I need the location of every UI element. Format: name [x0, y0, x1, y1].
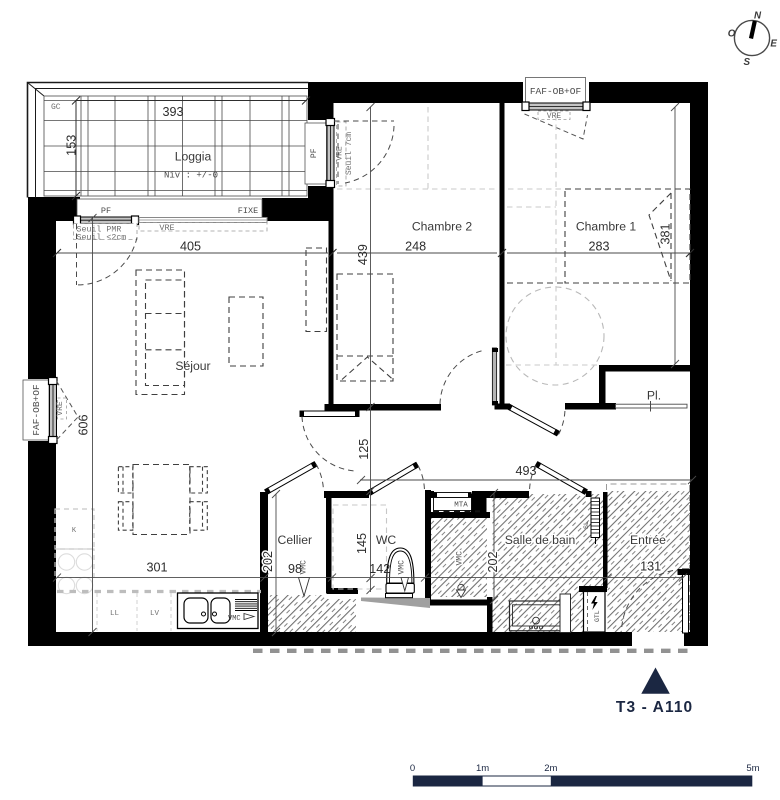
svg-text:FAF-OB+OF: FAF-OB+OF — [530, 86, 582, 97]
svg-text:Niv : +/-0: Niv : +/-0 — [164, 171, 218, 181]
svg-text:VMC: VMC — [456, 551, 465, 566]
svg-text:Pl.: Pl. — [647, 389, 661, 403]
svg-text:0: 0 — [410, 763, 415, 774]
svg-text:GTL: GTL — [594, 610, 601, 622]
svg-text:393: 393 — [162, 105, 183, 119]
svg-text:405: 405 — [180, 240, 201, 254]
svg-text:S: S — [744, 57, 751, 68]
svg-text:145: 145 — [355, 533, 369, 554]
svg-text:E: E — [770, 39, 777, 50]
svg-text:493: 493 — [515, 464, 536, 478]
svg-text:301: 301 — [146, 561, 167, 575]
svg-text:VMC: VMC — [398, 560, 407, 575]
svg-text:VRE: VRE — [159, 223, 174, 233]
svg-text:131: 131 — [640, 560, 661, 574]
svg-text:142: 142 — [369, 562, 390, 576]
svg-text:SL: SL — [583, 521, 590, 529]
svg-text:WC: WC — [376, 533, 397, 547]
svg-text:GC: GC — [51, 103, 61, 112]
svg-text:1m: 1m — [476, 763, 489, 774]
svg-text:381: 381 — [658, 223, 672, 244]
svg-text:Chambre 2: Chambre 2 — [412, 220, 473, 234]
svg-text:T3 - A110: T3 - A110 — [616, 699, 693, 716]
svg-text:FAF-OB+OF: FAF-OB+OF — [31, 384, 42, 436]
svg-text:606: 606 — [77, 414, 91, 435]
svg-text:248: 248 — [405, 240, 426, 254]
svg-text:Séjour: Séjour — [175, 359, 210, 373]
svg-text:98: 98 — [288, 562, 302, 576]
svg-text:PF: PF — [101, 206, 111, 216]
svg-text:Seuil <2cm: Seuil <2cm — [77, 232, 127, 242]
svg-text:2m: 2m — [544, 763, 557, 774]
svg-text:Cellier: Cellier — [278, 533, 313, 547]
svg-text:125: 125 — [357, 439, 371, 460]
svg-text:153: 153 — [64, 135, 78, 156]
svg-text:VRE: VRE — [547, 112, 562, 121]
svg-text:Seuil 7cm: Seuil 7cm — [345, 132, 354, 175]
svg-text:5m: 5m — [746, 763, 759, 774]
svg-text:LL: LL — [110, 610, 120, 618]
svg-text:439: 439 — [356, 244, 370, 265]
svg-text:VRE: VRE — [336, 146, 345, 161]
svg-text:Entrée: Entrée — [630, 533, 666, 547]
svg-text:Salle de bain: Salle de bain — [505, 533, 575, 547]
svg-text:LV: LV — [150, 610, 160, 618]
svg-text:283: 283 — [588, 240, 609, 254]
svg-text:VMC: VMC — [228, 615, 241, 623]
svg-text:MTA: MTA — [454, 502, 468, 510]
svg-text:Chambre 1: Chambre 1 — [576, 220, 637, 234]
svg-text:O: O — [728, 29, 736, 40]
svg-text:Loggia: Loggia — [175, 150, 212, 164]
svg-text:VRE: VRE — [56, 401, 65, 416]
svg-text:N: N — [754, 11, 762, 22]
svg-text:FIXE: FIXE — [238, 206, 258, 216]
svg-text:202: 202 — [261, 551, 275, 572]
svg-text:PF: PF — [310, 148, 319, 158]
svg-text:202: 202 — [486, 551, 500, 572]
